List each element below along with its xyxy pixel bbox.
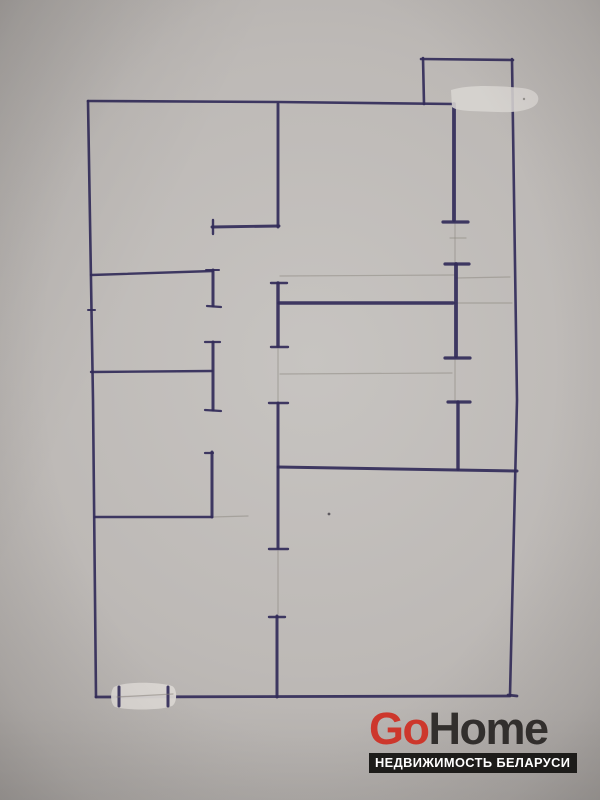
pencil-line xyxy=(456,277,510,278)
wall-segment xyxy=(212,226,279,227)
brand-wordmark: GoHome xyxy=(369,705,548,752)
paper-speck xyxy=(523,98,525,100)
wall-segment xyxy=(278,467,517,471)
wall-segment xyxy=(88,101,454,104)
paper-speck xyxy=(328,513,331,516)
pencil-line xyxy=(280,373,452,374)
wall-segment xyxy=(207,306,221,307)
wall-segment xyxy=(91,371,212,372)
pencil-line xyxy=(212,516,248,517)
watermark-logo: GoHome НЕДВИЖИМОСТЬ БЕЛАРУСИ xyxy=(369,705,577,773)
wall-segment xyxy=(88,101,96,697)
floor-plan-photo: GoHome НЕДВИЖИМОСТЬ БЕЛАРУСИ xyxy=(0,0,600,800)
brand-go-text: Go xyxy=(369,703,429,754)
floor-plan-sketch xyxy=(0,0,600,800)
wall-segment xyxy=(205,410,221,411)
wall-segment xyxy=(510,59,517,695)
whiteout-patch xyxy=(451,86,538,112)
brand-home-text: Home xyxy=(429,703,548,754)
wall-segment xyxy=(423,58,424,104)
wall-segment xyxy=(508,695,517,696)
wall-segment xyxy=(421,59,513,60)
pencil-line xyxy=(280,275,454,276)
wall-segment xyxy=(91,271,213,275)
tagline-bar: НЕДВИЖИМОСТЬ БЕЛАРУСИ xyxy=(369,753,577,773)
